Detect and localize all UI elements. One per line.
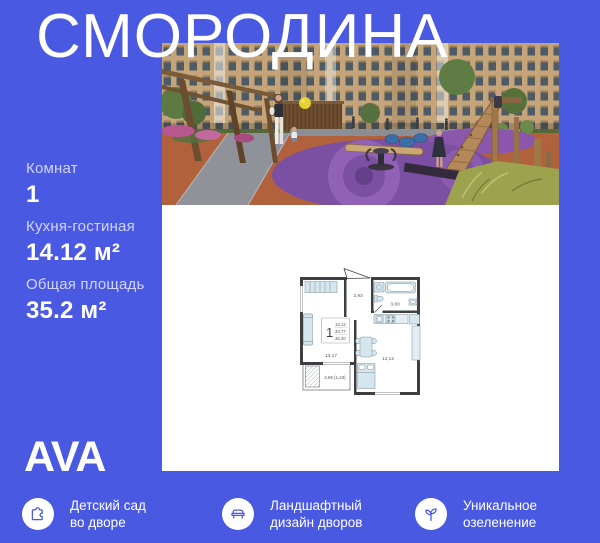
- bath-door: [375, 305, 383, 313]
- spec-rooms: Комнат 1: [26, 160, 78, 208]
- listing-card[interactable]: СМОРОДИНА: [0, 0, 600, 543]
- spec-label: Общая площадь: [26, 276, 144, 294]
- white-panel: 2,86 (1,43): [162, 205, 559, 471]
- bathroom-label: 3,60: [390, 302, 400, 308]
- svg-text:35,20: 35,20: [335, 336, 346, 341]
- spec-label: Комнат: [26, 160, 78, 178]
- spec-label: Кухня-гостиная: [26, 218, 135, 236]
- puzzle-icon: [29, 505, 47, 523]
- feature-landscape: Ландшафтный дизайн дворов: [222, 497, 362, 531]
- feature-kindergarten: Детский сад во дворе: [22, 497, 146, 531]
- feature-icon-circle: [222, 498, 254, 530]
- entry-door: [344, 269, 370, 279]
- feature-label: Детский сад во дворе: [70, 497, 146, 531]
- balcony-area-label: 2,86 (1,43): [324, 375, 346, 380]
- living-room-label: 13,17: [325, 353, 337, 359]
- svg-text:33,77: 33,77: [335, 329, 346, 334]
- kitchen-label: 14,12: [382, 356, 394, 362]
- feature-greenery: Уникальное озеленение: [415, 497, 537, 531]
- spec-value: 35.2 м²: [26, 298, 144, 324]
- ava-logo: AVA: [24, 436, 105, 479]
- feature-icon-circle: [22, 498, 54, 530]
- media-column: 2,86 (1,43): [162, 43, 559, 471]
- unit-rooms: 1: [326, 325, 333, 340]
- hallway-label: 2,93: [353, 293, 363, 299]
- bench-icon: [229, 505, 247, 523]
- spec-total-area: Общая площадь 35.2 м²: [26, 276, 144, 324]
- project-title: СМОРОДИНА: [36, 6, 448, 68]
- spec-value: 14.12 м²: [26, 240, 135, 266]
- spec-kitchen: Кухня-гостиная 14.12 м²: [26, 218, 135, 266]
- sprout-icon: [422, 505, 440, 523]
- feature-label: Уникальное озеленение: [463, 497, 537, 531]
- balcony: 2,86 (1,43): [303, 363, 350, 390]
- spec-value: 1: [26, 182, 78, 208]
- svg-text:13,12: 13,12: [335, 322, 346, 327]
- feature-label: Ландшафтный дизайн дворов: [270, 497, 362, 531]
- floorplan: 2,86 (1,43): [298, 266, 422, 398]
- feature-icon-circle: [415, 498, 447, 530]
- unit-info-box: 1 13,12 33,77 35,20: [322, 318, 350, 343]
